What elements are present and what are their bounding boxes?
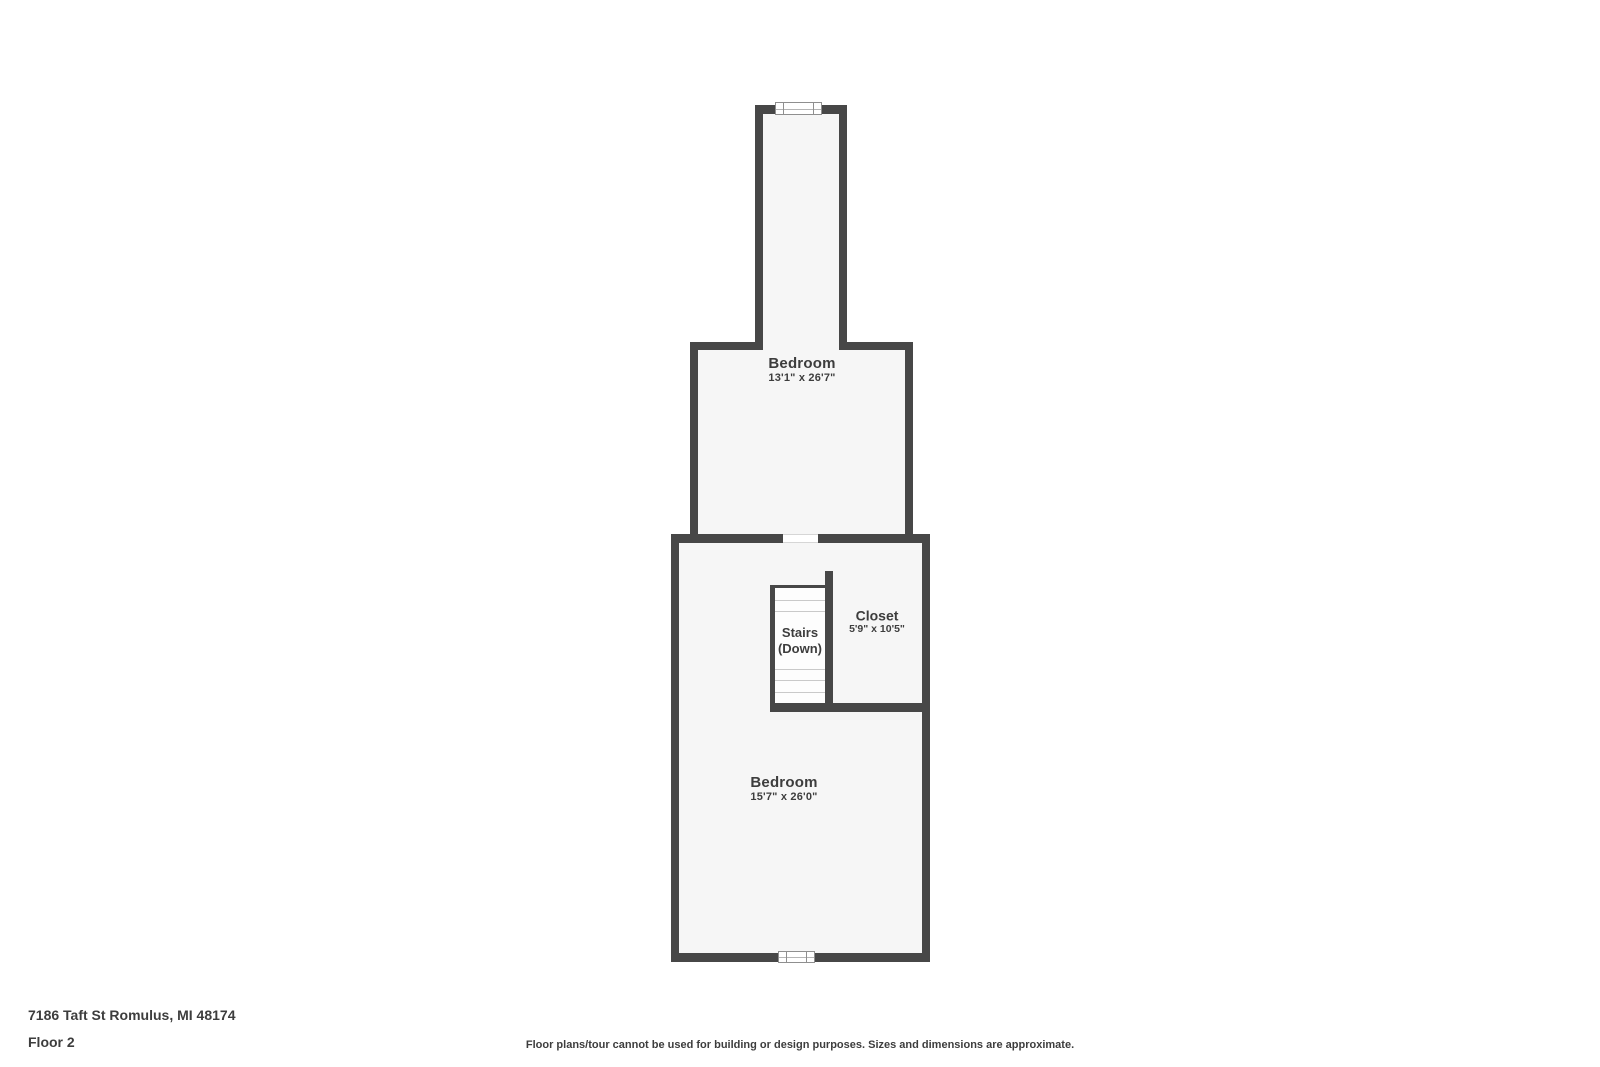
bedroom-top-label: Bedroom — [768, 356, 835, 373]
stairs-label-line2: (Down) — [778, 641, 822, 657]
window-pane-line — [779, 957, 814, 958]
stairs-label: Stairs (Down) — [775, 620, 825, 662]
wall-closet-south — [770, 703, 930, 712]
stair-tread-line — [775, 611, 825, 612]
window-divider — [813, 103, 814, 114]
hallway-extension-floor — [763, 114, 839, 350]
window-divider — [783, 103, 784, 114]
stair-top-rail — [770, 585, 825, 588]
bedroom-top-dimensions: 13'1" x 26'7" — [768, 372, 835, 384]
wall-stair-east — [825, 571, 833, 712]
closet-label: Closet — [856, 608, 899, 623]
bedroom-bottom-dimensions: 15'7" x 26'0" — [750, 791, 817, 803]
wall-bedroom-top-north-left — [690, 342, 759, 350]
wall-lower-east — [922, 534, 930, 962]
wall-top-narrow-right — [839, 105, 847, 350]
bedroom-bottom-label: Bedroom — [750, 775, 817, 792]
stair-tread-line — [775, 692, 825, 693]
wall-top-narrow-left — [755, 105, 763, 350]
stair-tread-line — [775, 669, 825, 670]
wall-bedroom-top-west — [690, 342, 698, 534]
window-bottom — [778, 951, 815, 963]
property-address: 7186 Taft St Romulus, MI 48174 — [28, 1007, 235, 1023]
disclaimer-text: Floor plans/tour cannot be used for buil… — [0, 1039, 1600, 1051]
wall-lower-north-right — [818, 534, 930, 543]
window-divider — [806, 952, 807, 962]
stair-tread-line — [775, 680, 825, 681]
wall-bedroom-top-north-right — [843, 342, 913, 350]
wall-lower-north-left — [671, 534, 783, 543]
stair-tread-line — [775, 600, 825, 601]
window-top — [775, 102, 822, 115]
floor-plan-canvas: Bedroom 13'1" x 26'7" Closet 5'9" x 10'5… — [0, 0, 1600, 1067]
stairs-label-line1: Stairs — [782, 625, 818, 641]
doorway-opening — [783, 534, 818, 543]
wall-bedroom-top-east — [905, 342, 913, 534]
closet-dimensions: 5'9" x 10'5" — [849, 624, 905, 636]
wall-lower-west — [671, 534, 679, 962]
window-divider — [786, 952, 787, 962]
